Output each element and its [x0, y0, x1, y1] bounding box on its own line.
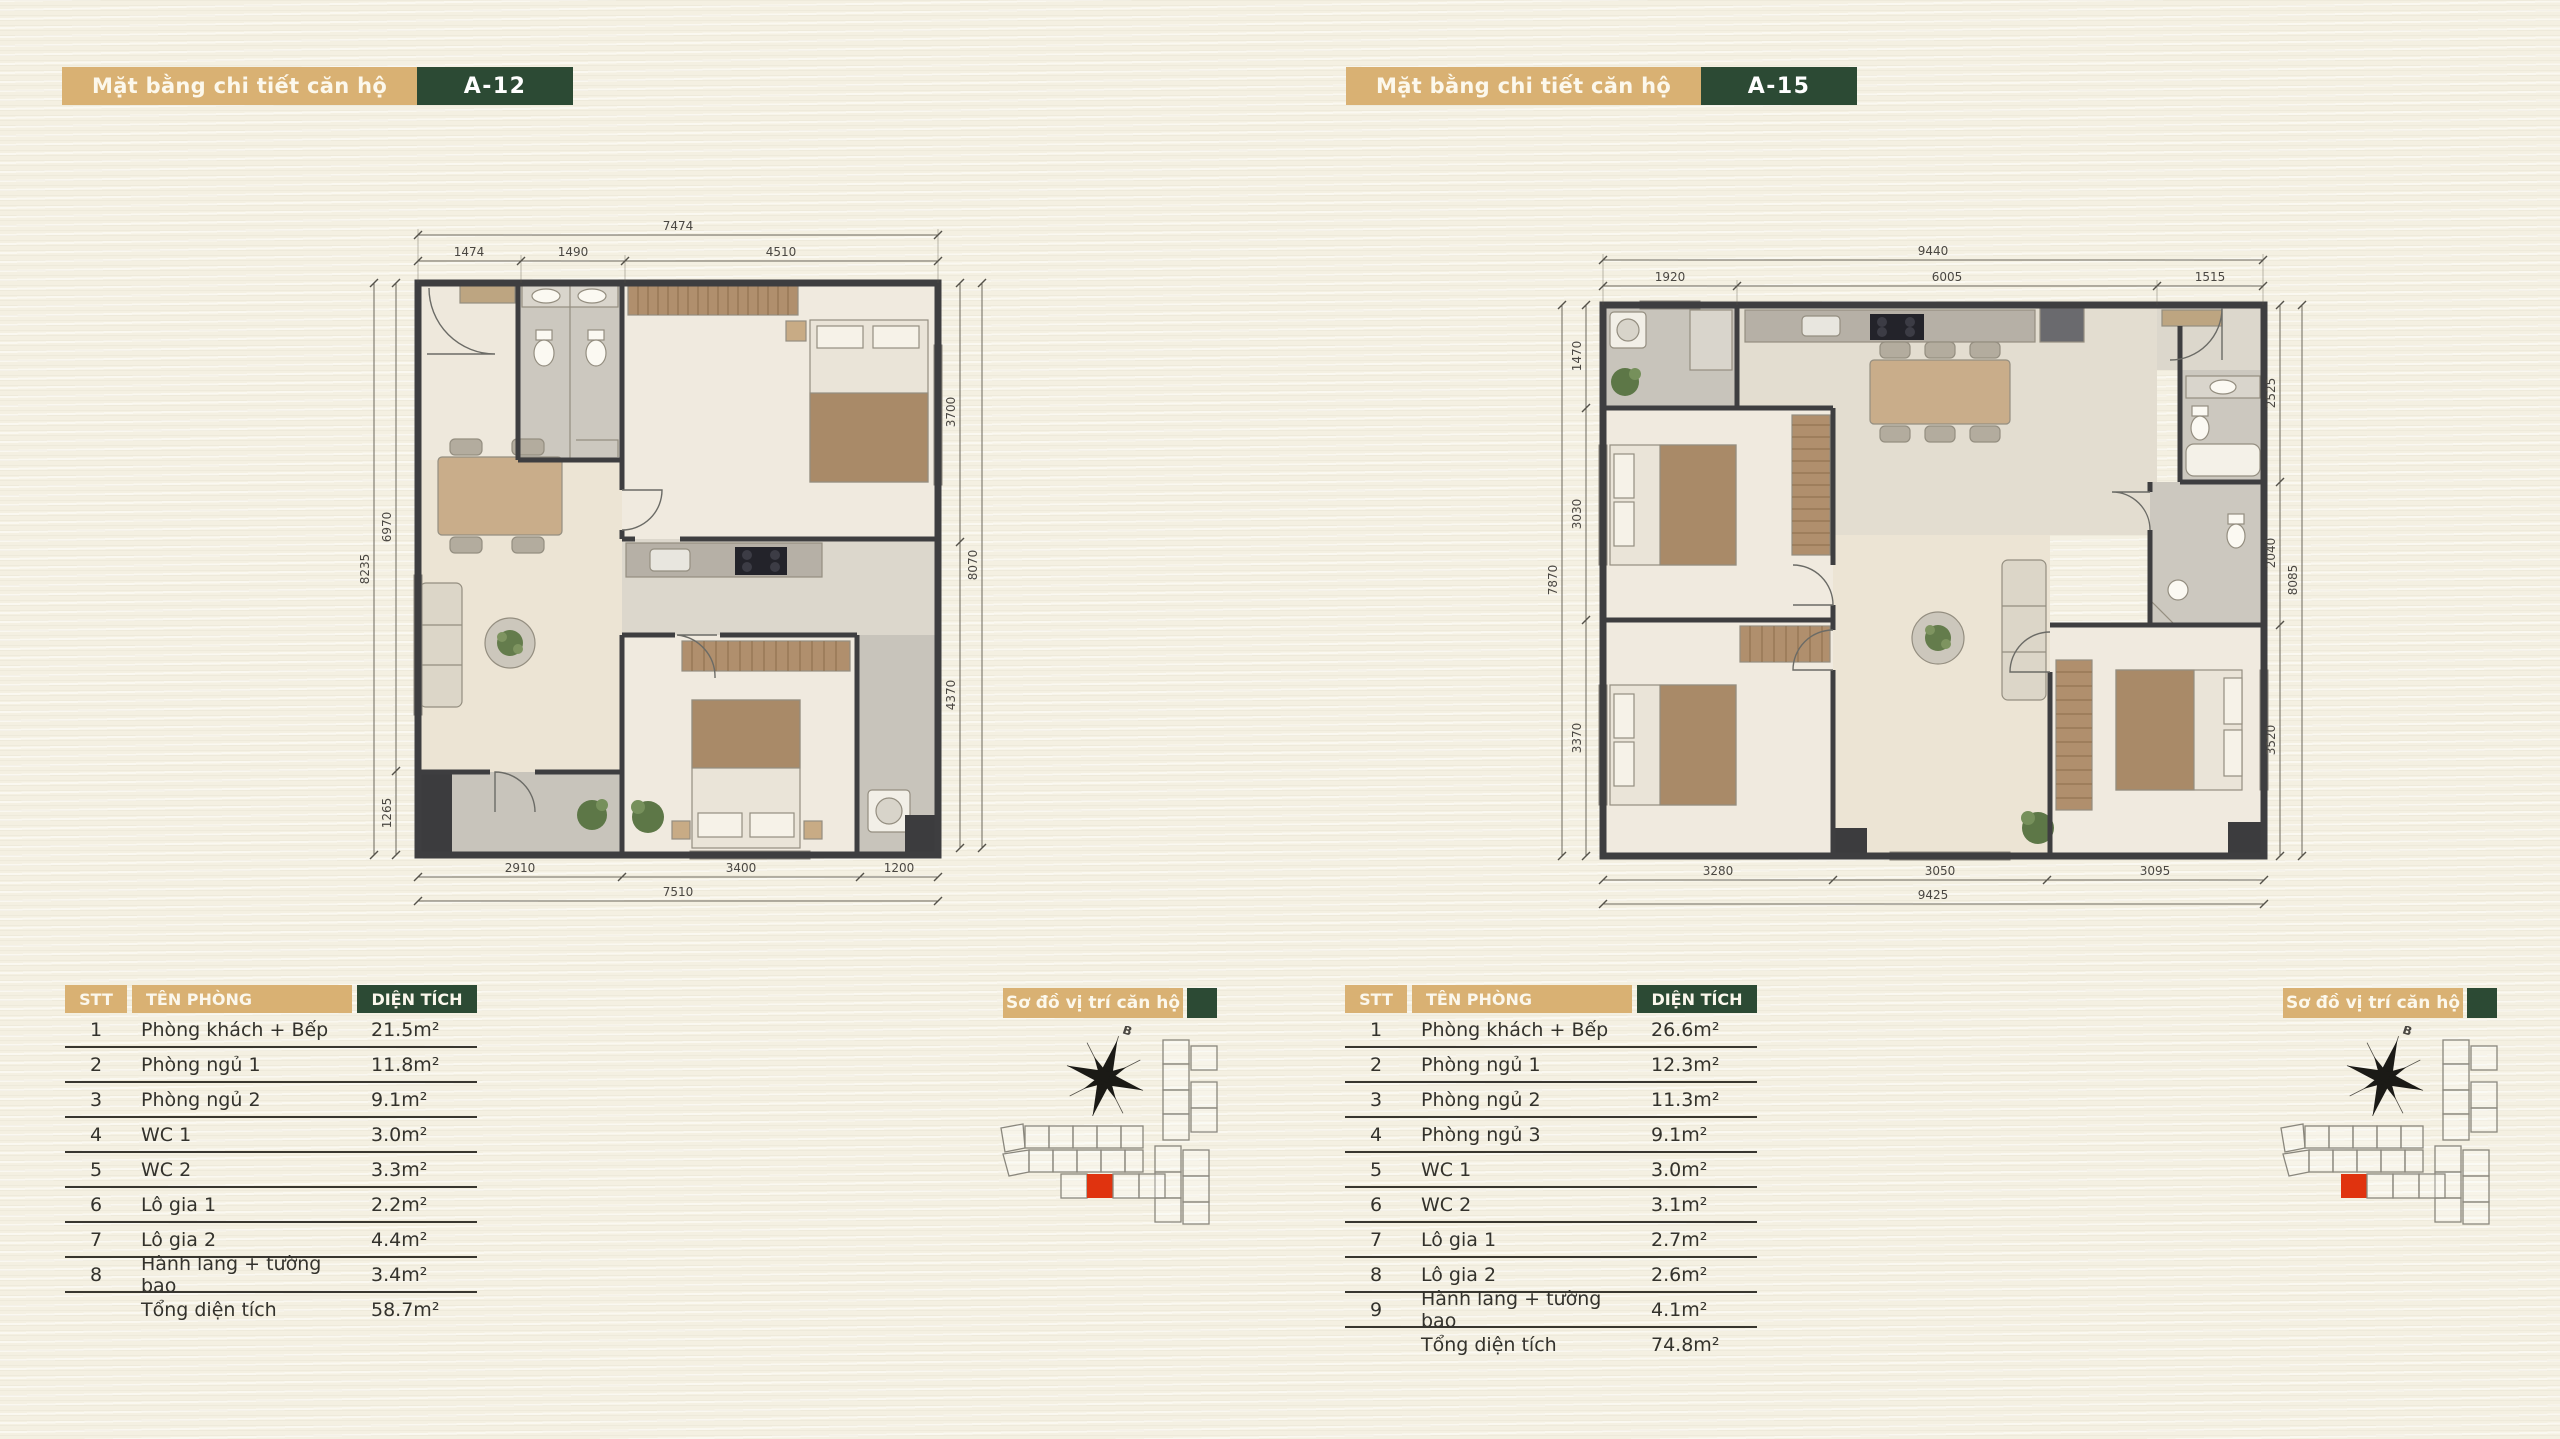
- row-area: 9.1m²: [357, 1089, 477, 1111]
- row-area: 2.6m²: [1637, 1264, 1757, 1286]
- compass-icon: B: [2335, 1026, 2442, 1128]
- col-header-room: TÊN PHÒNG: [1412, 985, 1632, 1013]
- svg-text:3095: 3095: [2140, 864, 2171, 878]
- col-header-area: DIỆN TÍCH: [1637, 985, 1757, 1013]
- floor-plan-a12: 7474 1474 1490 4510 2910 3400 1200 7510 …: [330, 205, 990, 915]
- location-green-square: [1187, 988, 1217, 1018]
- row-num: 7: [1345, 1229, 1407, 1251]
- location-header-a12: Sơ đồ vị trí căn hộ: [1003, 988, 1217, 1018]
- row-name: Phòng ngủ 2: [1407, 1089, 1637, 1111]
- row-num: 3: [1345, 1089, 1407, 1111]
- row-area: 2.2m²: [357, 1194, 477, 1216]
- svg-text:8085: 8085: [2286, 565, 2300, 596]
- svg-text:7870: 7870: [1546, 565, 1560, 596]
- panel-a12-header: Mặt bằng chi tiết căn hộ A-12: [62, 67, 573, 105]
- row-num: 8: [65, 1264, 127, 1286]
- svg-text:3700: 3700: [944, 397, 958, 428]
- unit-location-marker: [1087, 1174, 1113, 1198]
- svg-text:B: B: [1121, 1026, 1134, 1039]
- table-row: 1Phòng khách + Bếp26.6m²: [1345, 1013, 1757, 1048]
- location-minimap-a12: B: [995, 1026, 1245, 1226]
- row-name: Phòng ngủ 1: [1407, 1054, 1637, 1076]
- row-name: Phòng khách + Bếp: [1407, 1019, 1637, 1041]
- row-name: Phòng ngủ 3: [1407, 1124, 1637, 1146]
- table-row: 8Hành lang + tường bao3.4m²: [65, 1258, 477, 1293]
- row-num: 1: [1345, 1019, 1407, 1041]
- col-header-room: TÊN PHÒNG: [132, 985, 352, 1013]
- total-value: 74.8m²: [1637, 1334, 1757, 1356]
- svg-text:3370: 3370: [1570, 723, 1584, 754]
- table-row: 4Phòng ngủ 39.1m²: [1345, 1118, 1757, 1153]
- row-num: 9: [1345, 1299, 1407, 1321]
- row-name: WC 1: [1407, 1159, 1637, 1181]
- svg-text:9440: 9440: [1918, 244, 1949, 258]
- svg-text:1474: 1474: [454, 245, 485, 259]
- row-num: 6: [65, 1194, 127, 1216]
- row-area: 21.5m²: [357, 1019, 477, 1041]
- svg-text:6005: 6005: [1932, 270, 1963, 284]
- row-area: 3.1m²: [1637, 1194, 1757, 1216]
- svg-text:6970: 6970: [380, 512, 394, 543]
- row-area: 3.0m²: [1637, 1159, 1757, 1181]
- row-num: 3: [65, 1089, 127, 1111]
- location-green-square: [2467, 988, 2497, 1018]
- area-table-a15: STT TÊN PHÒNG DIỆN TÍCH 1Phòng khách + B…: [1345, 985, 1757, 1361]
- svg-text:3280: 3280: [1703, 864, 1734, 878]
- row-area: 3.0m²: [357, 1124, 477, 1146]
- row-area: 4.1m²: [1637, 1299, 1757, 1321]
- svg-text:1265: 1265: [380, 798, 394, 829]
- row-area: 12.3m²: [1637, 1054, 1757, 1076]
- panel-a15-title: Mặt bằng chi tiết căn hộ: [1346, 67, 1701, 105]
- row-num: 2: [65, 1054, 127, 1076]
- svg-text:3030: 3030: [1570, 499, 1584, 530]
- svg-text:7474: 7474: [663, 219, 694, 233]
- row-name: Phòng khách + Bếp: [127, 1019, 357, 1041]
- row-name: WC 2: [127, 1159, 357, 1181]
- table-header: STT TÊN PHÒNG DIỆN TÍCH: [1345, 985, 1757, 1013]
- panel-a15-unit-badge: A-15: [1701, 67, 1857, 105]
- row-name: Phòng ngủ 2: [127, 1089, 357, 1111]
- unit-location-marker: [2341, 1174, 2367, 1198]
- row-num: 7: [65, 1229, 127, 1251]
- row-area: 3.3m²: [357, 1159, 477, 1181]
- col-header-stt: STT: [1345, 985, 1407, 1013]
- svg-text:2040: 2040: [2264, 538, 2278, 569]
- svg-text:3520: 3520: [2264, 725, 2278, 756]
- row-name: Lô gia 1: [127, 1194, 357, 1216]
- svg-text:8070: 8070: [966, 550, 980, 581]
- row-area: 11.8m²: [357, 1054, 477, 1076]
- row-area: 4.4m²: [357, 1229, 477, 1251]
- table-row: 1Phòng khách + Bếp21.5m²: [65, 1013, 477, 1048]
- table-row: 2Phòng ngủ 112.3m²: [1345, 1048, 1757, 1083]
- row-name: Hành lang + tường bao: [127, 1253, 357, 1297]
- row-name: Lô gia 2: [1407, 1264, 1637, 1286]
- location-label: Sơ đồ vị trí căn hộ: [1003, 988, 1183, 1018]
- panel-a12-title: Mặt bằng chi tiết căn hộ: [62, 67, 417, 105]
- floor-plan-a15: 9440 1920 6005 1515 3280 3050 3095 9425 …: [1540, 230, 2330, 930]
- total-value: 58.7m²: [357, 1299, 477, 1321]
- row-num: 4: [65, 1124, 127, 1146]
- svg-text:1920: 1920: [1655, 270, 1686, 284]
- location-minimap-a15: B: [2275, 1026, 2525, 1226]
- row-num: 4: [1345, 1124, 1407, 1146]
- table-total-row: Tổng diện tích58.7m²: [65, 1293, 477, 1326]
- svg-text:3050: 3050: [1925, 864, 1956, 878]
- row-area: 26.6m²: [1637, 1019, 1757, 1041]
- page: Mặt bằng chi tiết căn hộ A-12: [0, 0, 2560, 1439]
- table-row: 6Lô gia 12.2m²: [65, 1188, 477, 1223]
- row-name: WC 1: [127, 1124, 357, 1146]
- row-num: 5: [1345, 1159, 1407, 1181]
- row-name: Hành lang + tường bao: [1407, 1288, 1637, 1332]
- table-header: STT TÊN PHÒNG DIỆN TÍCH: [65, 985, 477, 1013]
- row-num: 8: [1345, 1264, 1407, 1286]
- row-name: Lô gia 1: [1407, 1229, 1637, 1251]
- table-total-row: Tổng diện tích74.8m²: [1345, 1328, 1757, 1361]
- svg-text:B: B: [2401, 1026, 2414, 1039]
- table-row: 5WC 13.0m²: [1345, 1153, 1757, 1188]
- row-num: 1: [65, 1019, 127, 1041]
- svg-text:4510: 4510: [766, 245, 797, 259]
- table-row: 2Phòng ngủ 111.8m²: [65, 1048, 477, 1083]
- table-row: 3Phòng ngủ 29.1m²: [65, 1083, 477, 1118]
- row-name: Phòng ngủ 1: [127, 1054, 357, 1076]
- svg-text:1515: 1515: [2195, 270, 2226, 284]
- total-label: Tổng diện tích: [127, 1299, 357, 1321]
- panel-a12-unit-badge: A-12: [417, 67, 573, 105]
- row-name: WC 2: [1407, 1194, 1637, 1216]
- location-header-a15: Sơ đồ vị trí căn hộ: [2283, 988, 2497, 1018]
- svg-text:2910: 2910: [505, 861, 536, 875]
- row-num: 2: [1345, 1054, 1407, 1076]
- svg-text:3400: 3400: [726, 861, 757, 875]
- table-row: 7Lô gia 12.7m²: [1345, 1223, 1757, 1258]
- table-row: 6WC 23.1m²: [1345, 1188, 1757, 1223]
- svg-text:9425: 9425: [1918, 888, 1949, 902]
- svg-text:8235: 8235: [358, 554, 372, 585]
- svg-text:1470: 1470: [1570, 341, 1584, 372]
- row-num: 5: [65, 1159, 127, 1181]
- table-row: 9Hành lang + tường bao4.1m²: [1345, 1293, 1757, 1328]
- compass-icon: B: [1055, 1026, 1162, 1128]
- row-area: 11.3m²: [1637, 1089, 1757, 1111]
- svg-text:7510: 7510: [663, 885, 694, 899]
- col-header-stt: STT: [65, 985, 127, 1013]
- row-area: 3.4m²: [357, 1264, 477, 1286]
- panel-a15-header: Mặt bằng chi tiết căn hộ A-15: [1346, 67, 1857, 105]
- table-row: 5WC 23.3m²: [65, 1153, 477, 1188]
- svg-text:1490: 1490: [558, 245, 589, 259]
- row-name: Lô gia 2: [127, 1229, 357, 1251]
- row-area: 9.1m²: [1637, 1124, 1757, 1146]
- area-table-a12: STT TÊN PHÒNG DIỆN TÍCH 1Phòng khách + B…: [65, 985, 477, 1326]
- svg-text:1200: 1200: [884, 861, 915, 875]
- table-row: 3Phòng ngủ 211.3m²: [1345, 1083, 1757, 1118]
- total-label: Tổng diện tích: [1407, 1334, 1637, 1356]
- svg-text:2525: 2525: [2264, 378, 2278, 409]
- row-num: 6: [1345, 1194, 1407, 1216]
- table-row: 4WC 13.0m²: [65, 1118, 477, 1153]
- row-area: 2.7m²: [1637, 1229, 1757, 1251]
- location-label: Sơ đồ vị trí căn hộ: [2283, 988, 2463, 1018]
- svg-text:4370: 4370: [944, 680, 958, 711]
- col-header-area: DIỆN TÍCH: [357, 985, 477, 1013]
